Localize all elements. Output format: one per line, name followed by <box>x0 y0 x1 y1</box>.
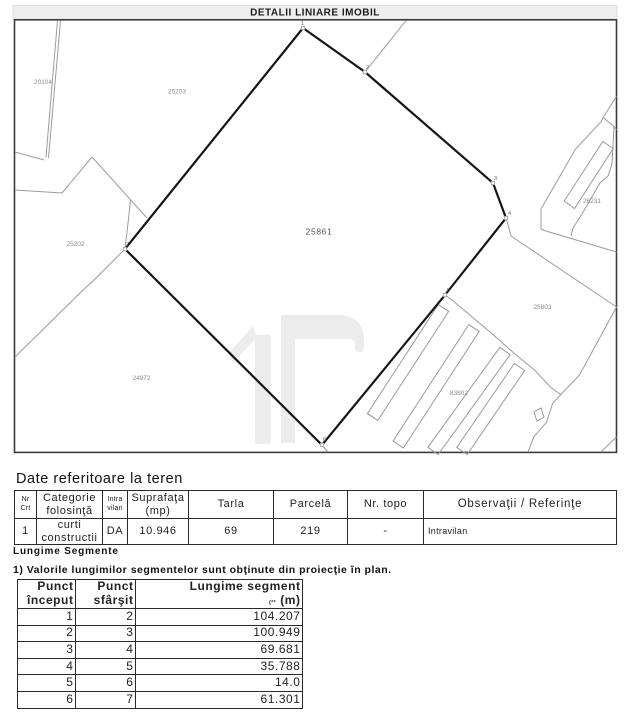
svg-text:25803: 25803 <box>533 304 551 311</box>
svg-text:24972: 24972 <box>132 375 150 382</box>
svg-text:20104: 20104 <box>34 79 52 86</box>
svg-text:2: 2 <box>366 65 369 71</box>
svg-text:25203: 25203 <box>168 89 186 96</box>
svg-text:5: 5 <box>447 288 450 294</box>
svg-text:6: 6 <box>323 437 326 443</box>
svg-text:25861: 25861 <box>306 227 333 237</box>
svg-text:83802: 83802 <box>450 390 468 397</box>
svg-text:26231: 26231 <box>583 198 601 205</box>
svg-text:DETALII LINIARE IMOBIL: DETALII LINIARE IMOBIL <box>250 8 380 19</box>
svg-text:3: 3 <box>494 176 497 182</box>
svg-text:25202: 25202 <box>66 241 84 248</box>
svg-text:1: 1 <box>301 21 304 27</box>
svg-text:4: 4 <box>508 211 511 217</box>
svg-text:7: 7 <box>126 242 129 248</box>
